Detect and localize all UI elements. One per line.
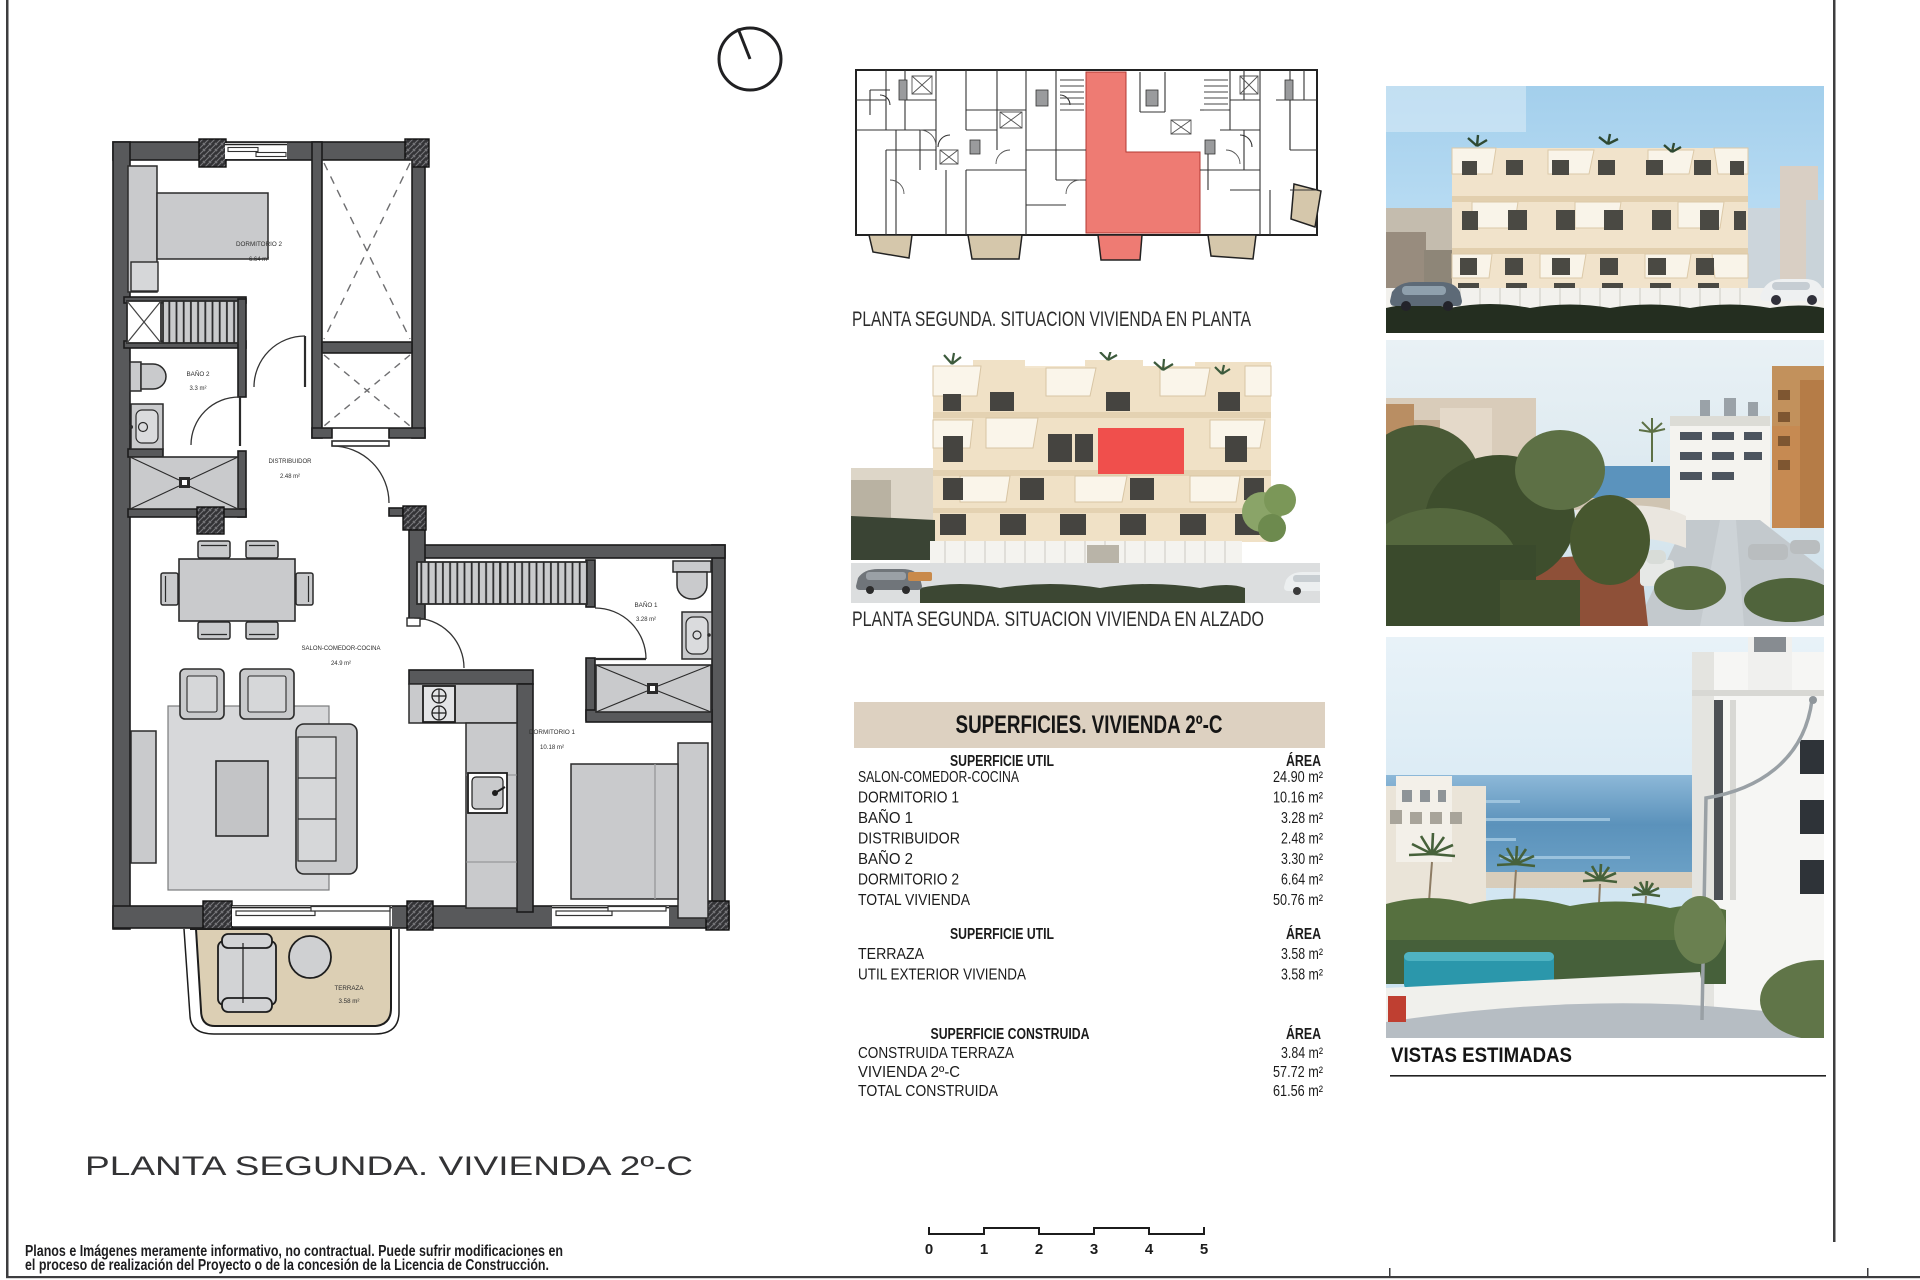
svg-text:3.58 m²: 3.58 m² — [1281, 946, 1323, 963]
svg-text:TERRAZA: TERRAZA — [335, 985, 365, 992]
svg-text:10.16 m²: 10.16 m² — [1273, 790, 1323, 807]
svg-text:3: 3 — [1090, 1241, 1098, 1258]
svg-text:24.90 m²: 24.90 m² — [1273, 769, 1323, 786]
svg-text:TOTAL VIVIENDA: TOTAL VIVIENDA — [858, 892, 971, 909]
svg-text:DORMITORIO 2: DORMITORIO 2 — [858, 872, 959, 889]
svg-text:SUPERFICIE UTIL: SUPERFICIE UTIL — [950, 753, 1054, 770]
svg-text:24.9 m²: 24.9 m² — [331, 660, 351, 667]
svg-text:3.28 m²: 3.28 m² — [636, 616, 656, 623]
svg-text:TOTAL CONSTRUIDA: TOTAL CONSTRUIDA — [858, 1083, 999, 1100]
svg-text:50.76 m²: 50.76 m² — [1273, 892, 1323, 909]
svg-text:0: 0 — [925, 1241, 933, 1258]
svg-text:6.64 m²: 6.64 m² — [1281, 872, 1323, 889]
svg-text:SUPERFICIE CONSTRUIDA: SUPERFICIE CONSTRUIDA — [931, 1026, 1090, 1043]
svg-text:3.58 m²: 3.58 m² — [339, 998, 360, 1005]
svg-text:DORMITORIO 2: DORMITORIO 2 — [236, 241, 283, 248]
svg-text:SALON-COMEDOR-COCINA: SALON-COMEDOR-COCINA — [302, 645, 382, 652]
svg-text:ÁREA: ÁREA — [1286, 1026, 1321, 1043]
svg-text:ÁREA: ÁREA — [1286, 753, 1321, 770]
svg-text:BAÑO 2: BAÑO 2 — [858, 851, 913, 868]
svg-text:4: 4 — [1145, 1241, 1154, 1258]
svg-text:2.48 m²: 2.48 m² — [1281, 831, 1323, 848]
svg-text:57.72 m²: 57.72 m² — [1273, 1064, 1323, 1081]
svg-text:6.64 m²: 6.64 m² — [249, 256, 269, 263]
svg-text:1: 1 — [980, 1241, 988, 1258]
svg-text:SUPERFICIE UTIL: SUPERFICIE UTIL — [950, 926, 1054, 943]
svg-text:BAÑO 1: BAÑO 1 — [858, 810, 913, 827]
svg-text:BAÑO 1: BAÑO 1 — [635, 602, 659, 609]
svg-text:3.58 m²: 3.58 m² — [1281, 967, 1323, 984]
svg-text:2: 2 — [1035, 1241, 1043, 1258]
svg-text:TERRAZA: TERRAZA — [858, 946, 925, 963]
svg-text:10.18 m²: 10.18 m² — [540, 744, 564, 751]
svg-text:PLANTA SEGUNDA. SITUACION VIVI: PLANTA SEGUNDA. SITUACION VIVIENDA EN PL… — [852, 308, 1251, 331]
svg-text:VIVIENDA 2º-C: VIVIENDA 2º-C — [858, 1064, 960, 1081]
svg-text:61.56 m²: 61.56 m² — [1273, 1083, 1323, 1100]
svg-text:DORMITORIO 1: DORMITORIO 1 — [529, 729, 576, 736]
svg-text:DORMITORIO 1: DORMITORIO 1 — [858, 790, 959, 807]
svg-text:3.84 m²: 3.84 m² — [1281, 1045, 1323, 1062]
svg-text:2.48 m²: 2.48 m² — [280, 473, 300, 480]
svg-text:SUPERFICIES. VIVIENDA 2º-C: SUPERFICIES. VIVIENDA 2º-C — [956, 711, 1223, 739]
svg-text:5: 5 — [1200, 1241, 1208, 1258]
svg-text:UTIL EXTERIOR VIVIENDA: UTIL EXTERIOR VIVIENDA — [858, 967, 1027, 984]
svg-text:PLANTA SEGUNDA. VIVIENDA 2º-C: PLANTA SEGUNDA. VIVIENDA 2º-C — [85, 1151, 693, 1181]
svg-text:3.30 m²: 3.30 m² — [1281, 851, 1323, 868]
svg-text:PLANTA SEGUNDA. SITUACION VIVI: PLANTA SEGUNDA. SITUACION VIVIENDA EN AL… — [852, 608, 1264, 631]
svg-text:VISTAS ESTIMADAS: VISTAS ESTIMADAS — [1391, 1044, 1572, 1067]
svg-text:BAÑO 2: BAÑO 2 — [187, 371, 211, 378]
svg-text:ÁREA: ÁREA — [1286, 926, 1321, 943]
svg-text:DISTRIBUIDOR: DISTRIBUIDOR — [269, 458, 313, 465]
svg-text:el proceso de realización del: el proceso de realización del Proyecto o… — [25, 1257, 549, 1274]
svg-text:3.3 m²: 3.3 m² — [190, 385, 207, 392]
svg-text:DISTRIBUIDOR: DISTRIBUIDOR — [858, 831, 960, 848]
svg-text:SALON-COMEDOR-COCINA: SALON-COMEDOR-COCINA — [858, 769, 1020, 786]
svg-text:3.28 m²: 3.28 m² — [1281, 810, 1323, 827]
svg-text:CONSTRUIDA TERRAZA: CONSTRUIDA TERRAZA — [858, 1045, 1015, 1062]
